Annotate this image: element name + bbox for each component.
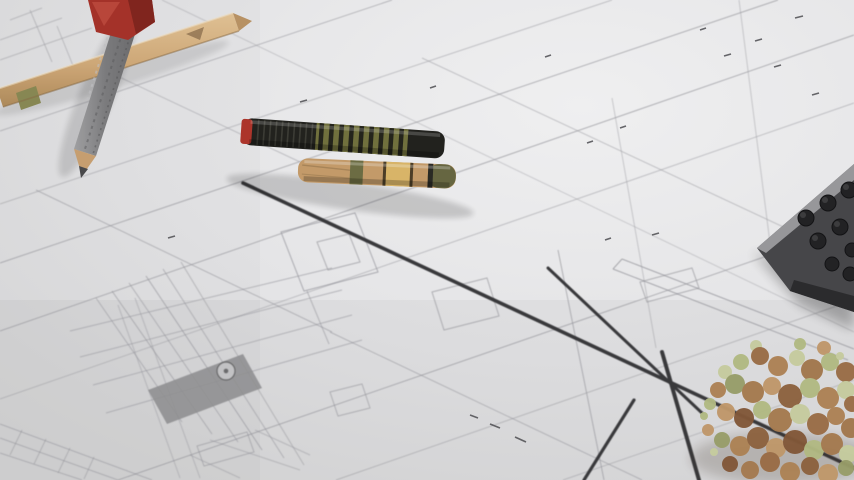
blueprint-scene: [0, 0, 854, 480]
blueprint-photo: [0, 0, 854, 480]
vignette: [0, 0, 854, 480]
